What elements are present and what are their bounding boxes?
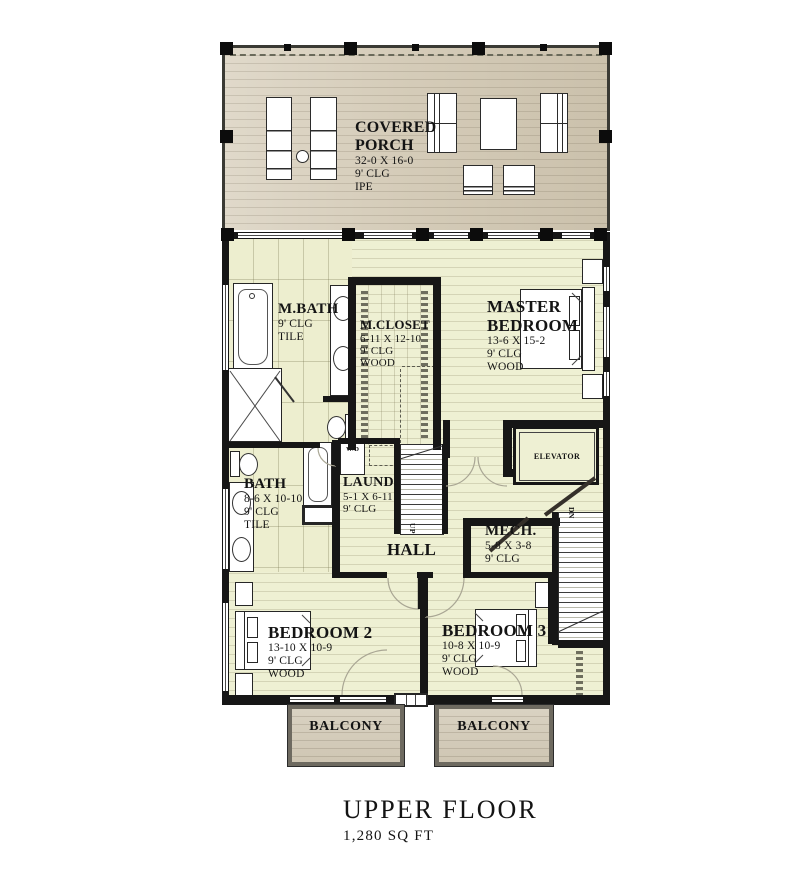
porch-post	[599, 42, 612, 55]
master-closet-label: M.CLOSET 6-11 X 12-10 9' CLG WOOD	[360, 318, 430, 369]
wall	[433, 283, 441, 450]
stairs-down-label: DN	[567, 507, 576, 519]
wall	[323, 396, 356, 402]
porch-post	[416, 228, 429, 241]
wall	[338, 438, 400, 444]
elevator-cab: ELEVATOR	[513, 426, 599, 485]
headboard	[582, 287, 595, 371]
plan-title-block: UPPER FLOOR 1,280 SQ FT	[343, 795, 538, 845]
porch-post	[220, 130, 233, 143]
covered-porch-label: COVERED PORCH 32-0 X 16-0 9' CLG IPE	[355, 119, 436, 193]
shower	[228, 368, 282, 442]
balcony-label: BALCONY	[309, 719, 383, 762]
wall	[420, 578, 428, 695]
wall	[465, 572, 558, 578]
bathtub	[303, 442, 332, 506]
stairs-up-label: UP	[408, 523, 417, 534]
window	[290, 697, 334, 702]
porch-post	[284, 44, 291, 51]
roof-overhang-dashed-line	[230, 54, 602, 56]
balcony-door	[340, 697, 386, 702]
wall	[332, 440, 340, 578]
porch-post	[594, 228, 607, 241]
lounge-chair	[310, 97, 337, 180]
window	[223, 603, 228, 691]
laundry-label: LAUND. 5-1 X 6-11 9' CLG	[343, 475, 397, 515]
cabinet	[302, 505, 335, 525]
pillow	[247, 617, 258, 638]
ottoman	[463, 165, 493, 195]
porch-post	[540, 228, 553, 241]
headboard	[235, 611, 245, 670]
wall	[548, 578, 556, 644]
window	[562, 233, 590, 238]
hall-label: HALL	[387, 540, 436, 559]
wall	[463, 518, 471, 578]
master-bedroom-label: MASTER BEDROOM 13-6 X 15-2 9' CLG WOOD	[487, 297, 578, 374]
stairs-up	[400, 444, 444, 535]
porch-post	[540, 44, 547, 51]
master-bath-label: M.BATH 9' CLG TILE	[278, 301, 339, 344]
sofa	[540, 93, 568, 153]
window	[604, 267, 609, 291]
window	[364, 233, 412, 238]
window	[238, 233, 342, 238]
porch-post	[472, 42, 485, 55]
window	[604, 372, 609, 396]
toilet	[327, 416, 346, 439]
window	[223, 285, 228, 370]
plan-title: UPPER FLOOR	[343, 795, 538, 825]
nightstand	[582, 259, 603, 284]
bath-label: BATH 8-6 X 10-10 9' CLG TILE	[244, 476, 302, 531]
floor-plan: W/D UP DN	[222, 45, 610, 760]
coffee-table	[480, 98, 517, 150]
nightstand	[582, 374, 603, 399]
wall	[335, 572, 387, 578]
sink	[232, 537, 251, 562]
porch-post	[344, 42, 357, 55]
balcony-label: BALCONY	[457, 719, 531, 762]
wall	[348, 283, 356, 450]
window	[434, 233, 468, 238]
bathtub	[233, 283, 273, 372]
lounge-chair	[266, 97, 292, 180]
bedroom-2-label: BEDROOM 2 13-10 X 10-9 9' CLG WOOD	[268, 623, 372, 681]
side-table	[296, 150, 309, 163]
stairs-down	[558, 512, 605, 644]
window	[488, 233, 538, 238]
porch-post	[412, 44, 419, 51]
shelf-dashed	[400, 369, 401, 443]
window	[223, 489, 228, 569]
porch-post	[220, 42, 233, 55]
nightstand	[235, 582, 253, 606]
porch-post	[470, 228, 483, 241]
porch-post	[221, 228, 234, 241]
ottoman	[503, 165, 535, 195]
pillow	[247, 642, 258, 663]
toilet	[239, 453, 258, 476]
window	[604, 307, 609, 357]
door-jamb	[443, 420, 450, 458]
porch-post	[342, 228, 355, 241]
wall	[348, 277, 441, 285]
balcony: BALCONY	[288, 705, 404, 766]
wall	[558, 640, 610, 648]
wall	[222, 442, 320, 448]
elevator-label: ELEVATOR	[519, 432, 595, 481]
nightstand	[235, 673, 253, 697]
floor-plan-page: W/D UP DN	[0, 0, 803, 889]
plan-area: 1,280 SQ FT	[343, 828, 538, 845]
balcony-door	[492, 697, 523, 702]
bedroom-3-label: BEDROOM 3 10-8 X 10-9 9' CLG WOOD	[442, 621, 546, 679]
balcony: BALCONY	[435, 705, 553, 766]
wall	[603, 232, 610, 705]
mech-label: MECH. 5-8 X 3-8 9' CLG	[485, 523, 536, 566]
porch-post	[599, 130, 612, 143]
